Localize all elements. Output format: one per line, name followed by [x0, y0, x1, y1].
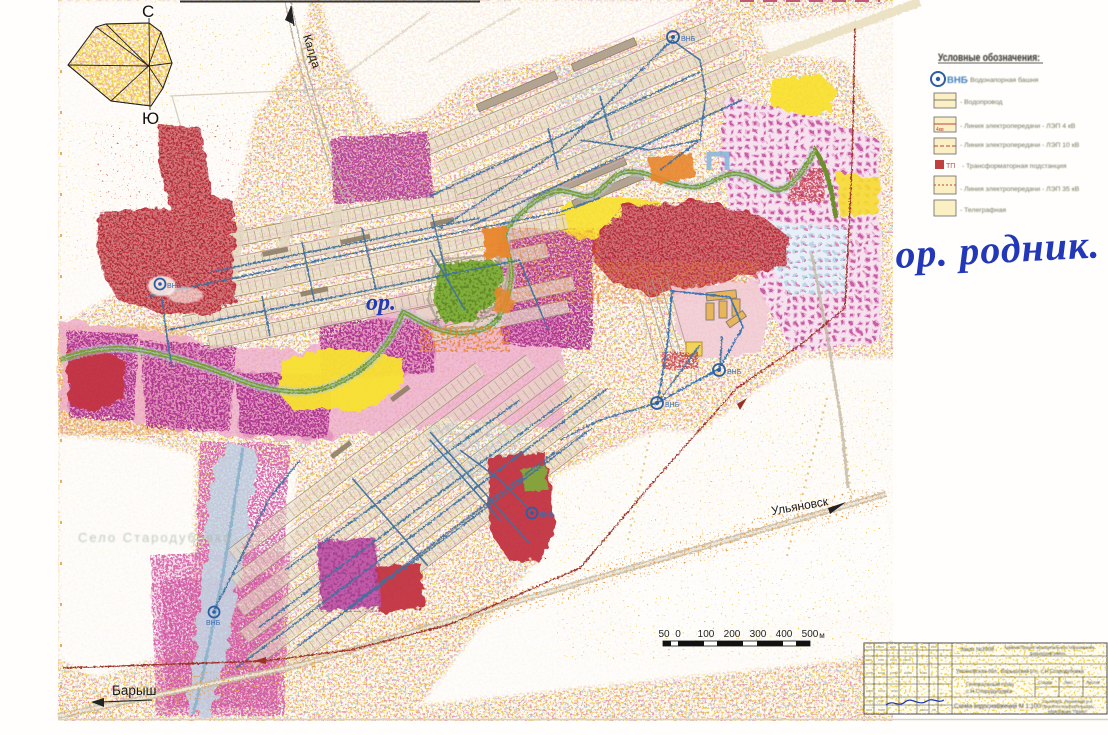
svg-text:Ю: Ю [142, 109, 159, 128]
svg-text:Схема водоснабжения М 1:100: Схема водоснабжения М 1:100 [954, 704, 1041, 710]
svg-text:0: 0 [675, 629, 681, 640]
svg-text:200: 200 [724, 629, 741, 640]
svg-text:ВНБ: ВНБ [727, 369, 742, 376]
svg-text:ВНБ: ВНБ [206, 620, 221, 627]
svg-text:С: С [142, 2, 154, 21]
svg-text:Барышский район: Барышский район [1030, 651, 1066, 656]
svg-text:Село Стародубовка: Село Стародубовка [78, 530, 232, 545]
svg-text:- Линия электропередачи - ЛЭП: - Линия электропередачи - ЛЭП 35 кВ [960, 186, 1080, 193]
svg-text:400: 400 [776, 629, 793, 640]
svg-text:ВНБ: ВНБ [539, 512, 554, 519]
svg-text:- Водопровод: - Водопровод [960, 99, 1002, 106]
svg-text:Генеральный план: Генеральный план [966, 681, 1014, 688]
svg-text:100: 100 [698, 629, 715, 640]
svg-text:ВНБ: ВНБ [681, 36, 696, 43]
svg-text:Лист: Лист [1064, 680, 1073, 685]
svg-text:Ульяновская обл., Барышский р-: Ульяновская обл., Барышский р-н, с.Н.Ста… [956, 668, 1084, 675]
svg-text:Заказ №2008: Заказ №2008 [960, 647, 994, 653]
svg-text:ВНБ: ВНБ [947, 75, 968, 86]
svg-text:ор.: ор. [366, 290, 396, 316]
svg-text:Администрация муниципального о: Администрация муниципального образования [1004, 645, 1094, 650]
svg-text:- Трансформаторная подстанция: - Трансформаторная подстанция [962, 163, 1067, 170]
svg-text:Листов: Листов [1086, 680, 1100, 685]
svg-text:- Телеграфная: - Телеграфная [960, 207, 1006, 214]
svg-text:ВНБ: ВНБ [167, 283, 182, 290]
svg-text:м: м [819, 631, 825, 640]
svg-text:4кв: 4кв [936, 127, 944, 133]
svg-text:ВНБ: ВНБ [665, 402, 680, 409]
svg-text:500: 500 [802, 629, 819, 640]
svg-text:300: 300 [750, 629, 767, 640]
svg-text:корпорация "Право": корпорация "Право" [1048, 709, 1088, 714]
svg-text:с.Н.Стародубовка: с.Н.Стародубовка [966, 689, 1013, 695]
svg-text:Стадия: Стадия [1038, 680, 1052, 685]
svg-text:- Водонапорная башня: - Водонапорная башня [966, 76, 1039, 84]
svg-text:- Линия электропередачи - ЛЭП: - Линия электропередачи - ЛЭП 10 кВ [960, 142, 1080, 149]
svg-text:ТП: ТП [946, 163, 955, 170]
svg-text:50: 50 [658, 629, 670, 640]
svg-text:Условные обозначения:: Условные обозначения: [938, 52, 1040, 64]
svg-text:- Линия электропередачи - ЛЭП: - Линия электропередачи - ЛЭП 4 кВ [960, 123, 1076, 130]
svg-text:Барыш: Барыш [112, 683, 156, 698]
